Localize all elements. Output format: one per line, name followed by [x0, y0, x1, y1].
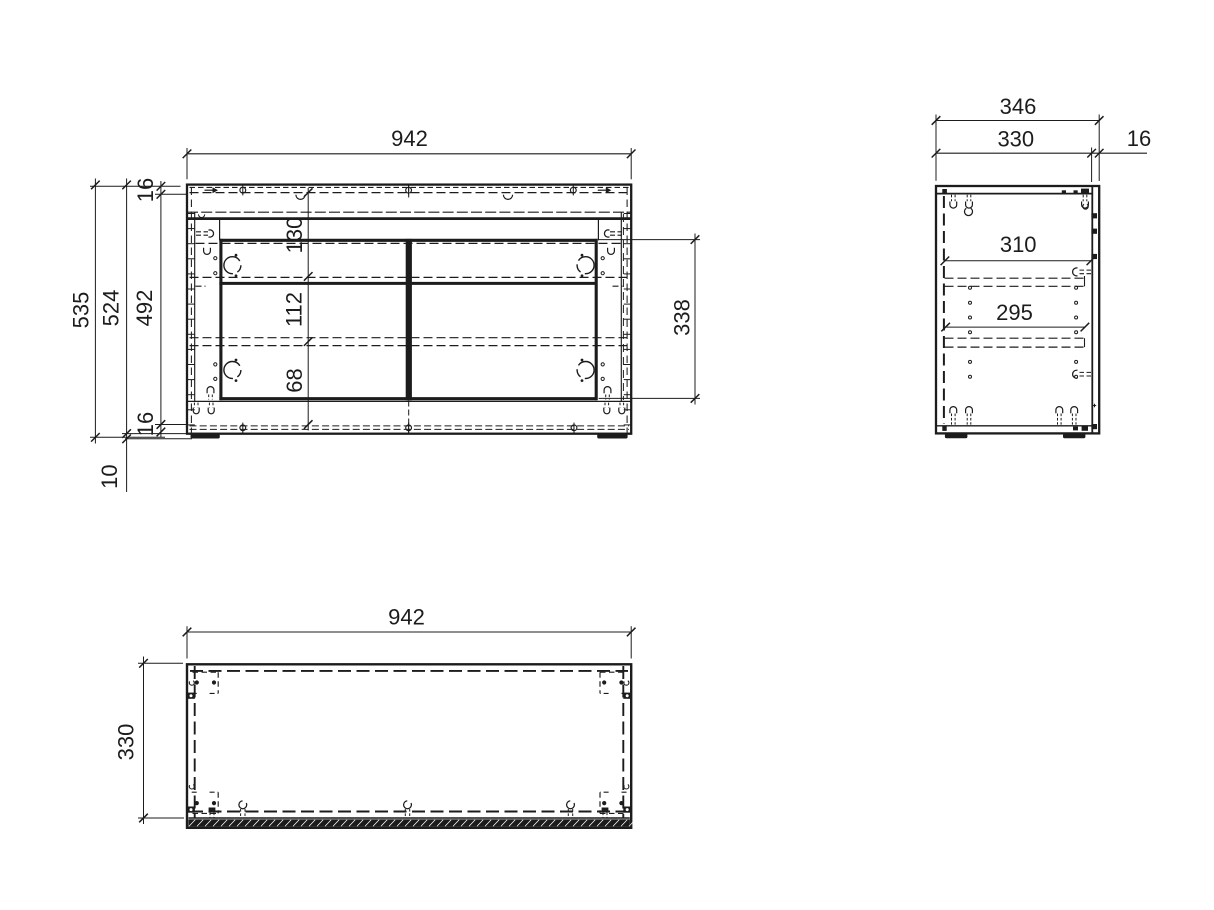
svg-text:112: 112: [282, 292, 307, 327]
svg-text:310: 310: [1000, 232, 1037, 257]
svg-text:524: 524: [99, 290, 124, 327]
svg-text:346: 346: [1000, 94, 1037, 119]
svg-text:68: 68: [282, 368, 307, 392]
svg-text:338: 338: [670, 299, 695, 336]
svg-text:16: 16: [133, 178, 158, 202]
svg-text:942: 942: [388, 605, 425, 630]
svg-text:130: 130: [282, 217, 307, 254]
svg-text:16: 16: [1127, 126, 1151, 151]
svg-text:942: 942: [391, 126, 428, 151]
svg-text:10: 10: [97, 464, 122, 488]
svg-text:330: 330: [997, 127, 1034, 152]
svg-text:330: 330: [114, 724, 139, 761]
svg-text:295: 295: [996, 300, 1033, 325]
svg-text:492: 492: [132, 290, 157, 327]
svg-text:535: 535: [68, 292, 93, 329]
svg-text:16: 16: [133, 412, 158, 436]
